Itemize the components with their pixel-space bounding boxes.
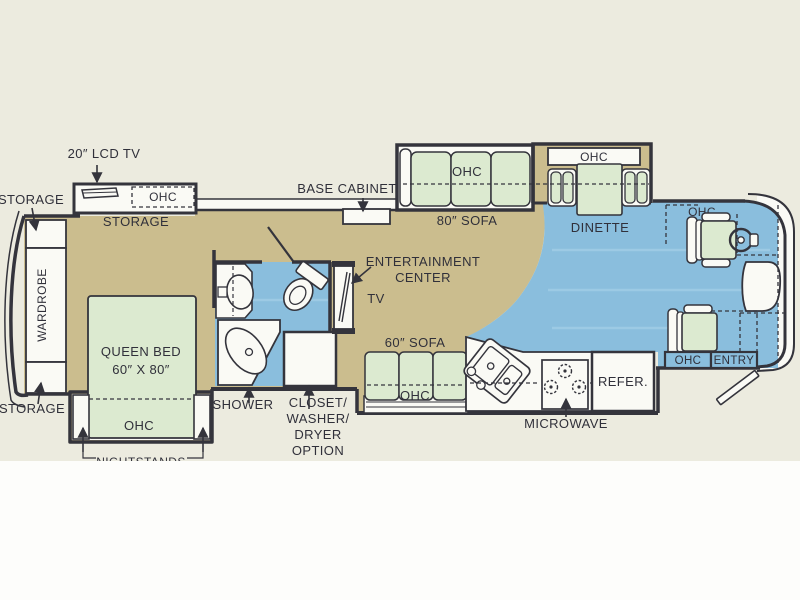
label-ohc-tv-slideout: OHC: [149, 190, 177, 204]
label-closet-1: CLOSET/: [289, 395, 347, 410]
sofa60-cushion: [365, 352, 399, 400]
label-entertainment-2: CENTER: [395, 270, 451, 285]
label-queen-bed-1: QUEEN BED: [101, 344, 181, 359]
scan-edge: [0, 461, 800, 600]
label-ohc-bed: OHC: [124, 418, 154, 433]
sofa80-armrest: [400, 149, 411, 206]
label-wardrobe: WARDROBE: [35, 268, 49, 341]
dinette-table: [577, 164, 622, 215]
label-shower: SHOWER: [213, 397, 274, 412]
label-entry: ENTRY: [714, 355, 755, 367]
entertainment-center: [332, 261, 355, 334]
label-storage-bottom: STORAGE: [0, 401, 65, 416]
label-entertainment-1: ENTERTAINMENT: [366, 254, 481, 269]
sofa60-cushion: [433, 352, 467, 400]
dinette-bench-right: [622, 169, 650, 206]
nightstand-left: [73, 395, 89, 439]
nightstand-right: [194, 395, 210, 439]
label-dinette: DINETTE: [571, 220, 629, 235]
label-storage-top: STORAGE: [0, 192, 64, 207]
sofa60: [364, 352, 468, 413]
closet-washer-dryer: [284, 332, 336, 386]
storage-cabinet-top: [26, 220, 66, 248]
sofa80-cushion: [411, 152, 451, 206]
storage-cabinet-bottom: [26, 362, 66, 393]
label-ohc-dinette: OHC: [580, 150, 608, 164]
passenger-seat: [668, 305, 717, 358]
label-refrigerator: REFER.: [598, 374, 648, 389]
sofa80-cushion: [491, 152, 530, 206]
label-microwave: MICROWAVE: [524, 416, 608, 431]
label-closet-3: DRYER: [294, 427, 341, 442]
floorplan-drawing: OHC: [0, 0, 800, 600]
label-ohc-sofa60: OHC: [400, 388, 430, 403]
label-sofa60: 60″ SOFA: [385, 335, 446, 350]
rv-floorplan-scan: OHC: [0, 0, 800, 600]
sofa80-cushion: [451, 152, 491, 206]
base-cabinet: [343, 209, 390, 224]
dinette-bench-left: [548, 169, 576, 206]
bathroom-vanity-sink-icon: [216, 264, 256, 318]
dashboard: [742, 262, 780, 311]
label-ohc-entry: OHC: [675, 355, 702, 367]
label-closet-2: WASHER/: [287, 411, 350, 426]
label-tv: TV: [367, 291, 384, 306]
stove-burners-icon: [542, 360, 588, 409]
label-ohc-sofa80: OHC: [452, 164, 482, 179]
label-storage-floor: STORAGE: [103, 214, 169, 229]
label-sofa80: 80″ SOFA: [437, 213, 498, 228]
label-closet-4: OPTION: [292, 443, 344, 458]
label-queen-bed-2: 60″ X 80″: [112, 362, 170, 377]
label-lcd-tv: 20″ LCD TV: [68, 146, 141, 161]
label-base-cabinet: BASE CABINET: [297, 181, 396, 196]
